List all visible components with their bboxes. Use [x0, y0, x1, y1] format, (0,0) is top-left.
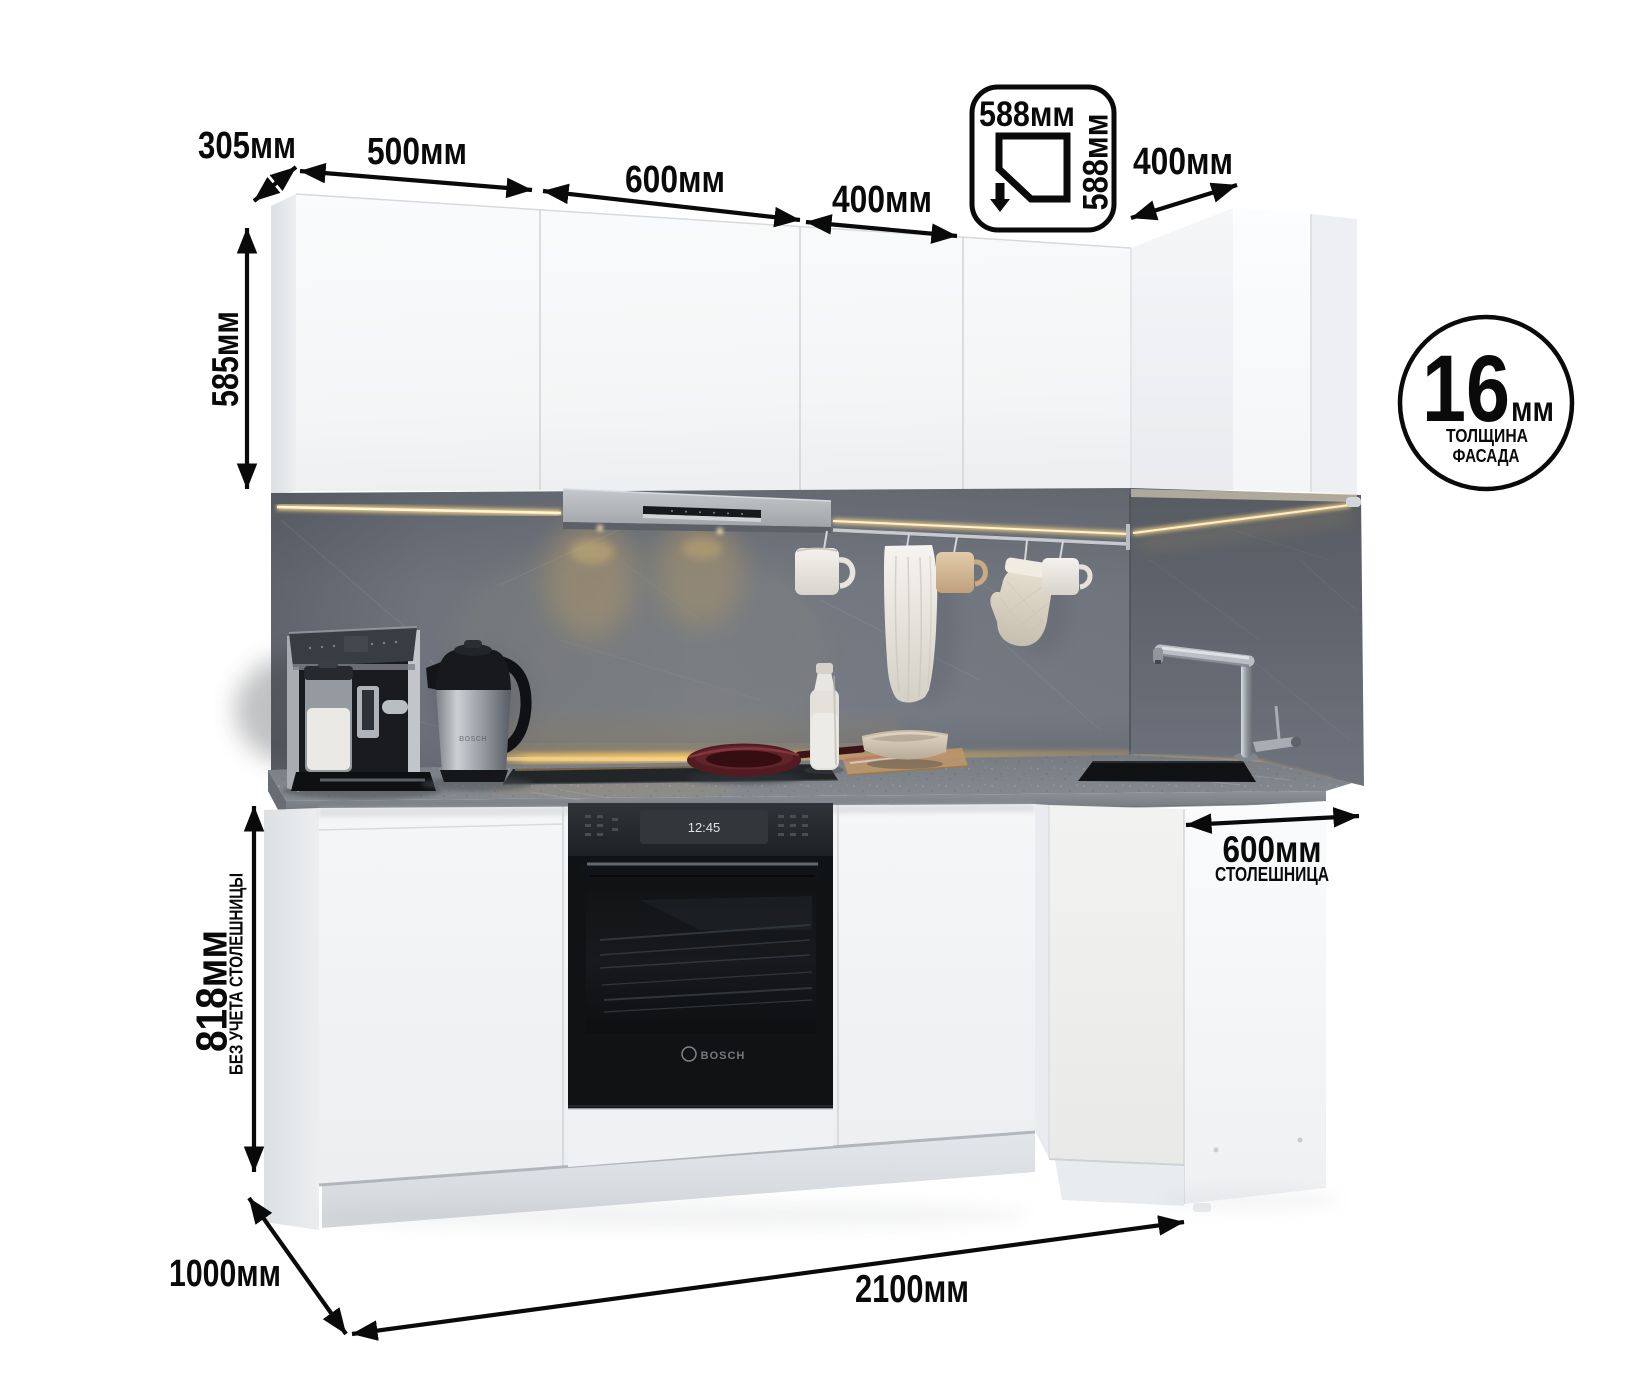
- svg-text:СТОЛЕШНИЦА: СТОЛЕШНИЦА: [1215, 864, 1329, 886]
- svg-text:600мм: 600мм: [625, 159, 725, 201]
- svg-text:400мм: 400мм: [832, 179, 932, 221]
- svg-text:400мм: 400мм: [1133, 141, 1233, 183]
- svg-text:2100мм: 2100мм: [855, 1268, 969, 1311]
- svg-text:БЕЗ УЧЕТА СТОЛЕШНИЦЫ: БЕЗ УЧЕТА СТОЛЕШНИЦЫ: [226, 873, 246, 1075]
- svg-text:мм: мм: [1511, 390, 1554, 429]
- svg-text:588мм: 588мм: [979, 95, 1075, 134]
- svg-text:ТОЛЩИНА: ТОЛЩИНА: [1446, 426, 1528, 446]
- svg-text:ФАСАДА: ФАСАДА: [1453, 446, 1520, 466]
- svg-text:588мм: 588мм: [1076, 114, 1115, 211]
- svg-text:BOSCH: BOSCH: [701, 1050, 746, 1062]
- svg-text:12:45: 12:45: [688, 820, 721, 835]
- svg-text:585мм: 585мм: [205, 311, 246, 407]
- svg-text:1000мм: 1000мм: [169, 1253, 281, 1295]
- svg-text:500мм: 500мм: [367, 131, 467, 173]
- svg-text:305мм: 305мм: [198, 125, 296, 167]
- svg-text:BOSCH: BOSCH: [459, 736, 487, 743]
